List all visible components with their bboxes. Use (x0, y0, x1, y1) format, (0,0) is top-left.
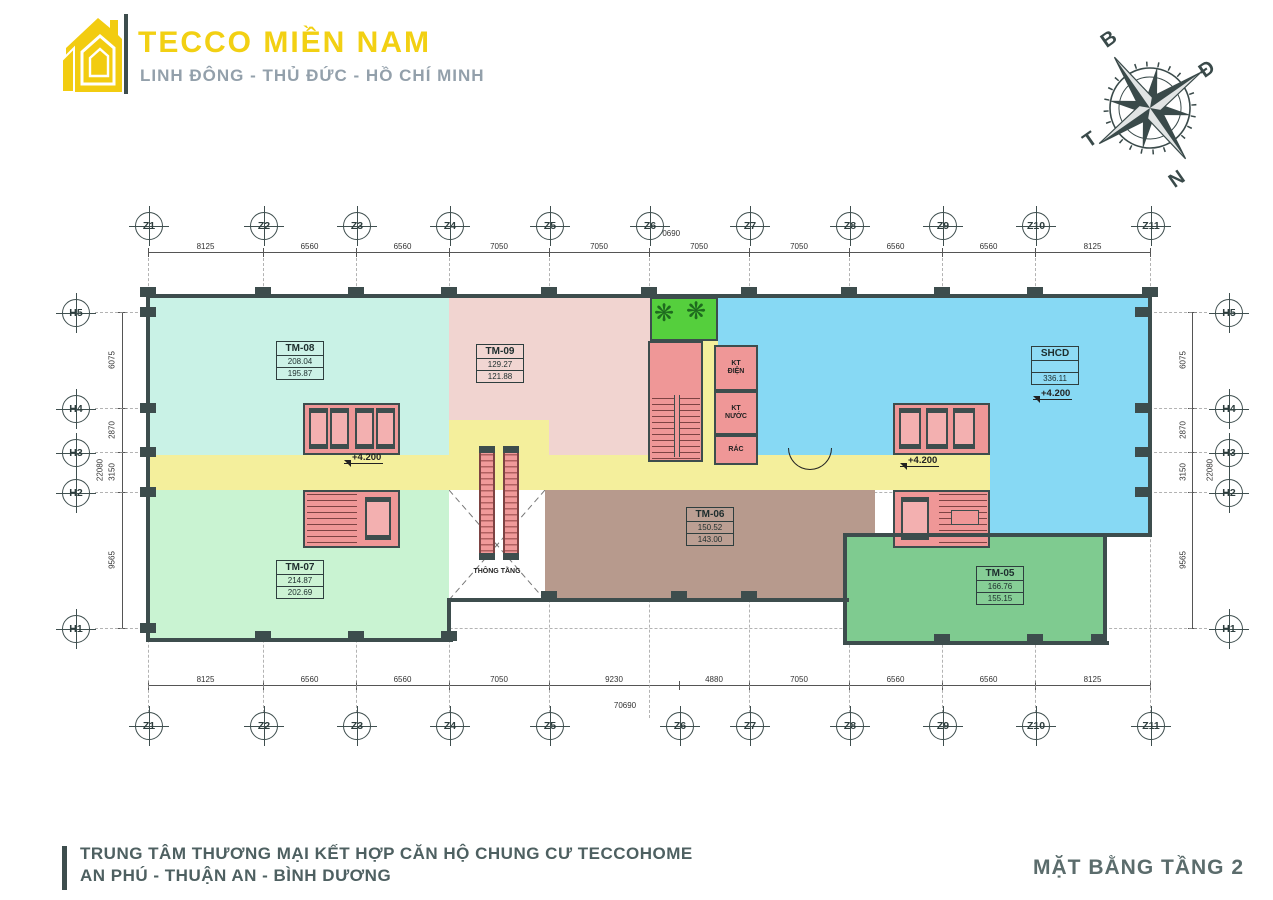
dim-value-top: 7050 (490, 242, 508, 251)
unit-area-net: 195.87 (277, 367, 323, 379)
column (1135, 447, 1151, 457)
level-mark-shcd: +4.200 (1033, 388, 1072, 400)
column (348, 287, 364, 297)
stair-core-left (303, 490, 400, 548)
axis-bubble-left: H5 (62, 299, 90, 327)
dim-tick (356, 248, 357, 257)
column (255, 287, 271, 297)
axis-bubble-top: Z3 (343, 212, 371, 240)
elevator-cell (376, 408, 395, 449)
axis-bubble-bottom: Z1 (135, 712, 163, 740)
dim-value-bottom: 8125 (197, 675, 215, 684)
drawing-sheet: TECCO MIỀN NAM LINH ĐÔNG - THỦ ĐỨC - HỒ … (0, 0, 1273, 900)
elevator-cell (953, 408, 975, 449)
column (348, 631, 364, 641)
axis-bubble-left: H1 (62, 615, 90, 643)
axis-bubble-bottom: Z4 (436, 712, 464, 740)
column (741, 591, 757, 601)
axis-bubble-right: H1 (1215, 615, 1243, 643)
unit-area-net: 143.00 (687, 533, 733, 545)
dim-value-bottom: 6560 (394, 675, 412, 684)
elevator-cell (926, 408, 948, 449)
dim-value-bottom: 7050 (790, 675, 808, 684)
dim-value-right: 3150 (1179, 463, 1188, 481)
corridor (148, 455, 990, 490)
axis-bubble-top: Z10 (1022, 212, 1050, 240)
brand-location: LINH ĐÔNG - THỦ ĐỨC - HỒ CHÍ MINH (140, 66, 485, 86)
unit-id: TM-06 (687, 508, 733, 522)
elevator-cell (330, 408, 349, 449)
column (140, 487, 156, 497)
kt-dien-label: KT ĐIỆN (728, 360, 745, 376)
dim-line-left (122, 312, 123, 628)
unit-id: TM-08 (277, 342, 323, 356)
dim-value-bottom: 4880 (705, 675, 723, 684)
dim-value-top: 7050 (690, 242, 708, 251)
column (255, 631, 271, 641)
dim-tick (1150, 248, 1151, 257)
dim-tick (749, 248, 750, 257)
column (140, 307, 156, 317)
unit-area-net: 336.11 (1032, 372, 1078, 384)
tecco-house-logo-icon (52, 12, 124, 96)
wall-right (1148, 294, 1152, 537)
unit-area-gross: 150.52 (687, 522, 733, 533)
dim-value-bottom: 8125 (1084, 675, 1102, 684)
tree-icon: ❋ (654, 302, 674, 326)
axis-bubble-top: Z6 (636, 212, 664, 240)
project-title-line2: AN PHÚ - THUẬN AN - BÌNH DƯƠNG (80, 866, 391, 886)
elevator-cell (355, 408, 374, 449)
dim-value-top: 6560 (980, 242, 998, 251)
dim-value-top: 6560 (301, 242, 319, 251)
unit-area-gross (1032, 361, 1078, 372)
axis-bubble-bottom: Z5 (536, 712, 564, 740)
dim-value-left: 6075 (108, 351, 117, 369)
dim-value-right: 2870 (1179, 421, 1188, 439)
void-cross-lines (449, 490, 545, 600)
column (1135, 403, 1151, 413)
project-title-line1: TRUNG TÂM THƯƠNG MẠI KẾT HỢP CĂN HỘ CHUN… (80, 844, 693, 864)
level-mark-corridor-left: +4.200 (344, 452, 383, 464)
wall-tm05-top (843, 533, 1107, 537)
column (1091, 634, 1107, 644)
column (541, 287, 557, 297)
wall-left (146, 294, 150, 642)
level-mark-corridor-right: +4.200 (900, 455, 939, 467)
column (671, 591, 687, 601)
column (934, 287, 950, 297)
unit-label-box: TM-08208.04195.87 (276, 341, 324, 380)
column (934, 634, 950, 644)
dim-tick (849, 248, 850, 257)
dim-total-height-left: 22080 (96, 459, 105, 481)
brand-title: TECCO MIỀN NAM (138, 26, 431, 60)
elevator-cell (899, 408, 921, 449)
column (140, 403, 156, 413)
unit-area-net: 202.69 (277, 586, 323, 598)
dim-tick (549, 248, 550, 257)
dim-tick (263, 248, 264, 257)
column (441, 631, 457, 641)
dim-total-width-bottom: 70690 (614, 701, 636, 710)
dim-value-right: 9565 (1179, 551, 1188, 569)
dim-tick (1035, 248, 1036, 257)
stair-core-right (893, 490, 990, 548)
dim-tick (649, 248, 650, 257)
drawing-title: MẶT BẰNG TẦNG 2 (1033, 856, 1244, 880)
compass-east-label: Đ (1195, 56, 1219, 82)
dim-value-top: 8125 (197, 242, 215, 251)
column (140, 447, 156, 457)
axis-bubble-bottom: Z3 (343, 712, 371, 740)
column (741, 287, 757, 297)
unit-area-gross: 214.87 (277, 575, 323, 586)
stair-landing (951, 510, 979, 525)
unit-area-shcd-lower (990, 455, 1150, 535)
axis-bubble-top: Z8 (836, 212, 864, 240)
dim-tick (679, 681, 680, 690)
unit-area-net: 121.88 (477, 370, 523, 382)
axis-bubble-top: Z4 (436, 212, 464, 240)
dim-value-top: 6560 (887, 242, 905, 251)
unit-id: TM-07 (277, 561, 323, 575)
unit-area-gross: 129.27 (477, 359, 523, 370)
wall-tm05-bottom (843, 641, 1109, 645)
dim-value-left: 3150 (108, 463, 117, 481)
unit-label-box: SHCD336.11 (1031, 346, 1079, 385)
unit-area-gross: 166.76 (977, 581, 1023, 592)
compass-north-label: B (1097, 26, 1121, 52)
axis-bubble-right: H2 (1215, 479, 1243, 507)
column (1135, 487, 1151, 497)
dim-value-top: 7050 (590, 242, 608, 251)
unit-id: SHCD (1032, 347, 1078, 361)
column (841, 287, 857, 297)
tree-icon: ❋ (686, 300, 706, 324)
unit-id: TM-05 (977, 567, 1023, 581)
column (1142, 287, 1158, 297)
unit-area-gross: 208.04 (277, 356, 323, 367)
wall-bottom-left (146, 638, 453, 642)
axis-bubble-left: H2 (62, 479, 90, 507)
wall-bottom-mid (447, 598, 849, 602)
wall-tm05-right (1103, 535, 1107, 645)
compass-rose: B Đ T N (1078, 8, 1228, 198)
axis-bubble-right: H5 (1215, 299, 1243, 327)
axis-bubble-left: H3 (62, 439, 90, 467)
column (441, 287, 457, 297)
void-label: THÔNG TẦNG (473, 568, 520, 576)
dim-value-bottom: 6560 (980, 675, 998, 684)
axis-bubble-bottom: Z7 (736, 712, 764, 740)
unit-id: TM-09 (477, 345, 523, 359)
stair-steps (307, 494, 357, 543)
corridor-escalator-zone (449, 420, 549, 490)
unit-area-net: 155.15 (977, 592, 1023, 604)
unit-label-box: TM-09129.27121.88 (476, 344, 524, 383)
axis-bubble-top: Z5 (536, 212, 564, 240)
column (140, 287, 156, 297)
dim-value-right: 6075 (1179, 351, 1188, 369)
column (140, 623, 156, 633)
wall-tm05-left (843, 533, 847, 645)
dim-tick (449, 248, 450, 257)
elevator-bank-left (303, 403, 400, 455)
axis-bubble-top: Z9 (929, 212, 957, 240)
unit-area-tm05 (845, 535, 1105, 645)
axis-bubble-right: H4 (1215, 395, 1243, 423)
dim-value-bottom: 9230 (605, 675, 623, 684)
unit-label-box: TM-06150.52143.00 (686, 507, 734, 546)
column (1135, 307, 1151, 317)
column (1027, 634, 1043, 644)
elevator-cell (365, 497, 391, 540)
axis-bubble-top: Z2 (250, 212, 278, 240)
column (541, 591, 557, 601)
axis-bubble-right: H3 (1215, 439, 1243, 467)
axis-bubble-bottom: Z8 (836, 712, 864, 740)
axis-bubble-bottom: Z10 (1022, 712, 1050, 740)
axis-bubble-bottom: Z9 (929, 712, 957, 740)
dim-tick (148, 248, 149, 257)
kt-nuoc-label: KT NƯỚC (725, 405, 747, 421)
dim-value-top: 6560 (394, 242, 412, 251)
dim-value-bottom: 6560 (887, 675, 905, 684)
compass-west-label: T (1079, 127, 1102, 152)
dim-line-right (1192, 312, 1193, 628)
dim-value-top: 8125 (1084, 242, 1102, 251)
dim-tick (942, 248, 943, 257)
wall-step-right (1105, 533, 1152, 537)
column (1027, 287, 1043, 297)
axis-bubble-bottom: Z2 (250, 712, 278, 740)
rac-label: RÁC (728, 446, 743, 454)
dim-value-left: 2870 (108, 421, 117, 439)
escalator (503, 448, 519, 558)
logo-divider (124, 14, 128, 94)
axis-bubble-top: Z11 (1137, 212, 1165, 240)
escalator (479, 448, 495, 558)
axis-bubble-top: Z1 (135, 212, 163, 240)
axis-bubble-top: Z7 (736, 212, 764, 240)
footer-accent-bar (62, 846, 67, 890)
axis-bubble-bottom: Z11 (1137, 712, 1165, 740)
unit-label-box: TM-07214.87202.69 (276, 560, 324, 599)
dim-value-top: 7050 (790, 242, 808, 251)
axis-bubble-bottom: Z6 (666, 712, 694, 740)
compass-south-label: N (1165, 166, 1189, 192)
elevator-cell (309, 408, 328, 449)
dim-total-height-right: 22080 (1206, 459, 1215, 481)
dim-value-bottom: 6560 (301, 675, 319, 684)
unit-label-box: TM-05166.76155.15 (976, 566, 1024, 605)
dim-value-bottom: 7050 (490, 675, 508, 684)
stair-rail (674, 395, 680, 457)
stair-core-mid (648, 341, 703, 462)
elevator-bank-right (893, 403, 990, 455)
column (641, 287, 657, 297)
dim-value-left: 9565 (108, 551, 117, 569)
axis-bubble-left: H4 (62, 395, 90, 423)
